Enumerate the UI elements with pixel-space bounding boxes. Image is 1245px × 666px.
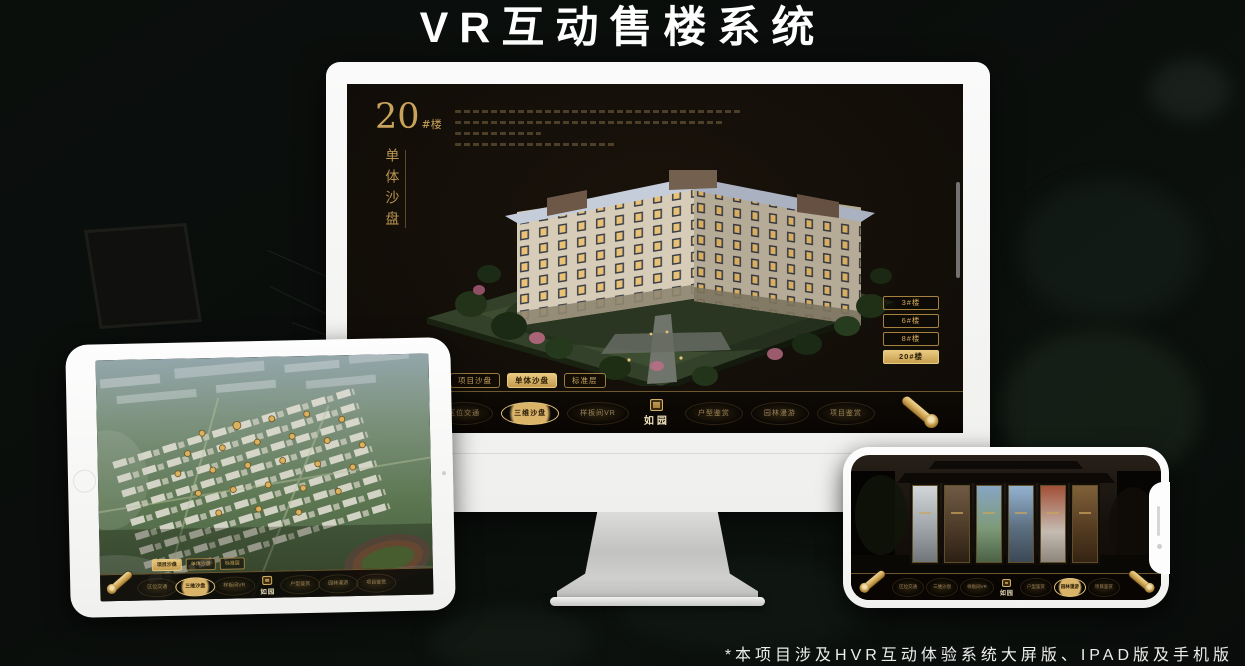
building-title: 20#楼 <box>375 100 442 135</box>
nav-item-label: 三维沙盘 <box>514 410 546 417</box>
nav-item-label: 区位交通 <box>899 584 917 589</box>
floor-button-20[interactable]: 20#楼 <box>883 350 939 364</box>
scroll-menu-icon[interactable] <box>901 395 936 426</box>
scrollbar[interactable] <box>956 182 960 278</box>
nav-item-label: 项目鉴赏 <box>830 410 862 417</box>
tab-project-sandbox[interactable]: 项目沙盘 <box>450 373 500 388</box>
nav-item-unit-plans[interactable]: 户型鉴赏 <box>692 406 736 421</box>
nav-item-3d-sandbox[interactable]: 三维沙盘 <box>930 582 954 593</box>
tab-standard-floor[interactable]: 标准层 <box>564 373 606 388</box>
nav-item-label: 三维沙盘 <box>933 584 951 589</box>
nav-item-showroom-vr[interactable]: 样板间VR <box>574 406 622 421</box>
phone-notch <box>1149 482 1170 574</box>
nav-item-location-traffic[interactable]: 区位交通 <box>144 582 170 594</box>
phone-device: 区位交通 三维沙盘 样板间VR 如园 户型鉴赏 园林漫游 项目鉴赏 <box>843 447 1169 608</box>
seal-icon <box>1002 579 1011 587</box>
monitor-stand-base <box>550 597 765 606</box>
title-divider <box>405 150 406 228</box>
building-3d-model[interactable] <box>419 156 901 386</box>
tab-single-sandbox[interactable]: 单体沙盘 <box>186 558 216 571</box>
scene-card-garden[interactable] <box>976 485 1002 563</box>
nav-item-label: 项目鉴赏 <box>1095 584 1113 589</box>
nav-item-label: 区位交通 <box>147 584 167 590</box>
seal-icon <box>263 575 273 584</box>
speaker-icon <box>1157 506 1160 536</box>
phone-bottom-nav: 区位交通 三维沙盘 样板间VR 如园 户型鉴赏 园林漫游 项目鉴赏 <box>851 573 1161 600</box>
nav-item-label: 三维沙盘 <box>185 583 205 589</box>
floor-button-8[interactable]: 8#楼 <box>883 332 939 346</box>
scene-card-interior[interactable] <box>912 485 938 563</box>
nav-item-label: 样板间VR <box>223 582 245 588</box>
nav-item-garden-tour[interactable]: 园林漫游 <box>325 578 351 590</box>
nav-item-label: 户型鉴赏 <box>698 410 730 417</box>
view-tabs: 项目沙盘 单体沙盘 标准层 <box>450 373 606 388</box>
phone-screen[interactable]: 区位交通 三维沙盘 样板间VR 如园 户型鉴赏 园林漫游 项目鉴赏 <box>851 455 1161 600</box>
brand-name: 如园 <box>644 412 670 427</box>
nav-item-label: 项目鉴赏 <box>366 579 386 585</box>
tab-project-sandbox[interactable]: 项目沙盘 <box>152 559 182 572</box>
scene-card-lobby[interactable] <box>944 485 970 563</box>
nav-item-label: 样板间VR <box>967 584 987 589</box>
footnote-text: *本项目涉及HVR互动体验系统大屏版、IPAD版及手机版 <box>725 641 1233 665</box>
monitor-stand <box>557 512 758 600</box>
nav-item-label: 区位交通 <box>448 410 480 417</box>
promo-canvas: VR互动售楼系统 20#楼 单体沙盘 <box>0 0 1245 666</box>
scene-card-study[interactable] <box>1072 485 1098 563</box>
page-title: VR互动售楼系统 <box>0 0 1245 56</box>
nav-item-project-gallery[interactable]: 项目鉴赏 <box>363 577 389 589</box>
brand-name: 如园 <box>260 585 275 595</box>
nav-item-3d-sandbox[interactable]: 三维沙盘 <box>508 406 552 421</box>
brand-logo[interactable]: 如园 <box>1000 579 1014 597</box>
tab-single-sandbox[interactable]: 单体沙盘 <box>507 373 557 388</box>
brand-name: 如园 <box>1000 588 1014 597</box>
tab-standard-floor[interactable]: 标准层 <box>220 557 245 570</box>
tablet-view-tabs: 项目沙盘 单体沙盘 标准层 <box>152 557 245 571</box>
scene-gallery <box>912 485 1098 563</box>
nav-item-garden-tour[interactable]: 园林漫游 <box>1058 582 1082 593</box>
seal-icon <box>650 399 663 411</box>
nav-item-project-gallery[interactable]: 项目鉴赏 <box>824 406 868 421</box>
tablet-screen[interactable]: 项目沙盘 单体沙盘 标准层 区位交通 三维沙盘 样板间VR 如园 户型鉴赏 园林… <box>96 353 434 601</box>
aerial-masterplan-view[interactable] <box>96 353 434 601</box>
floor-button-3[interactable]: 3#楼 <box>883 296 939 310</box>
camera-icon <box>1157 544 1162 549</box>
brand-logo[interactable]: 如园 <box>644 399 670 427</box>
camera-icon <box>442 471 446 475</box>
background-texture <box>1020 180 1200 320</box>
nav-item-label: 园林漫游 <box>764 410 796 417</box>
nav-item-3d-sandbox[interactable]: 三维沙盘 <box>182 581 208 593</box>
floor-button-6[interactable]: 6#楼 <box>883 314 939 328</box>
scene-card-building[interactable] <box>1008 485 1034 563</box>
building-number: 20 <box>375 97 420 137</box>
floor-button-group: 3#楼 6#楼 8#楼 20#楼 <box>883 296 939 368</box>
background-plaque <box>84 223 202 329</box>
nav-item-showroom-vr[interactable]: 样板间VR <box>220 580 248 592</box>
nav-item-label: 园林漫游 <box>328 580 348 586</box>
nav-item-project-gallery[interactable]: 项目鉴赏 <box>1092 582 1116 593</box>
nav-item-label: 户型鉴赏 <box>1027 584 1045 589</box>
nav-item-showroom-vr[interactable]: 样板间VR <box>964 582 990 593</box>
background-texture <box>430 610 590 666</box>
tablet-device: 项目沙盘 单体沙盘 标准层 区位交通 三维沙盘 样板间VR 如园 户型鉴赏 园林… <box>65 337 456 618</box>
building-number-suffix: #楼 <box>422 118 442 131</box>
brand-logo[interactable]: 如园 <box>260 575 275 595</box>
building-subtitle: 单体沙盘 <box>384 148 399 232</box>
background-texture <box>1150 60 1230 120</box>
nav-item-label: 园林漫游 <box>1061 584 1079 589</box>
description-text-placeholder <box>455 110 755 154</box>
tablet-bottom-nav: 区位交通 三维沙盘 样板间VR 如园 户型鉴赏 园林漫游 项目鉴赏 <box>100 567 433 601</box>
nav-item-label: 户型鉴赏 <box>290 581 310 587</box>
nav-item-label: 样板间VR <box>580 410 616 417</box>
nav-item-unit-plans[interactable]: 户型鉴赏 <box>1024 582 1048 593</box>
nav-item-location-traffic[interactable]: 区位交通 <box>896 582 920 593</box>
nav-item-garden-tour[interactable]: 园林漫游 <box>758 406 802 421</box>
scene-card-gate[interactable] <box>1040 485 1066 563</box>
nav-item-unit-plans[interactable]: 户型鉴赏 <box>287 579 313 591</box>
home-button[interactable] <box>73 469 96 492</box>
